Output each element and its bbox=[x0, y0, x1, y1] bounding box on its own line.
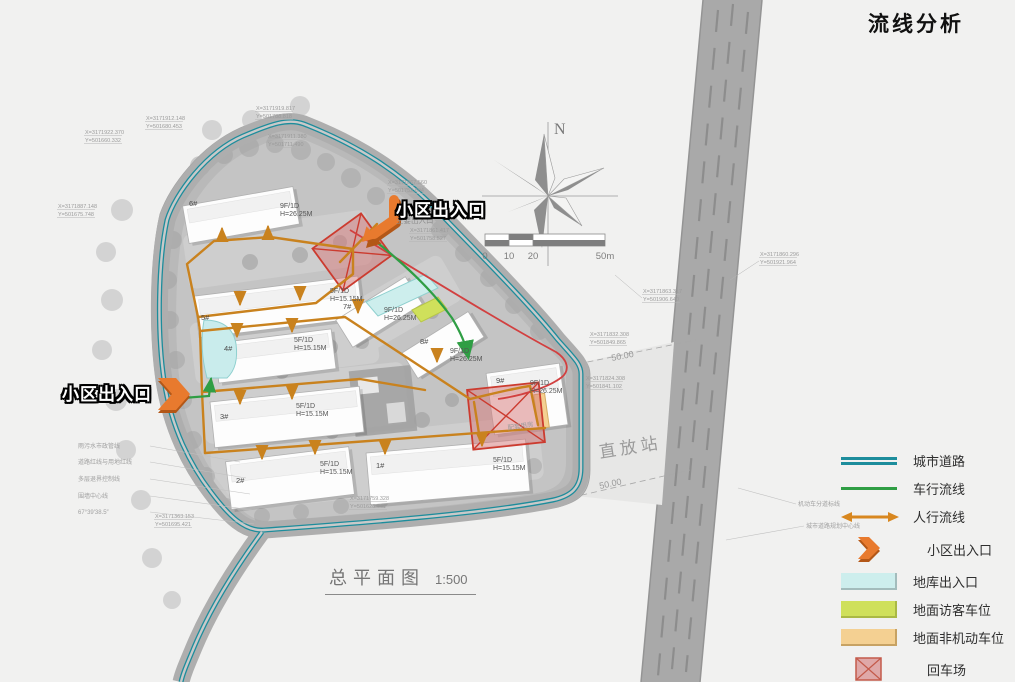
svg-text:X=3171887.148: X=3171887.148 bbox=[58, 204, 97, 210]
garage-entrance-swatch bbox=[841, 573, 903, 590]
turnaround-box-icon bbox=[855, 657, 882, 681]
svg-text:围墙中心线: 围墙中心线 bbox=[78, 492, 108, 500]
svg-text:Y=501921.964: Y=501921.964 bbox=[760, 260, 796, 266]
building-spec: H=26.25M bbox=[530, 388, 563, 395]
legend-item-city-road: 城市道路 bbox=[841, 452, 1013, 469]
building-spec: H=15.15M bbox=[330, 296, 363, 303]
compass-north-label: N bbox=[554, 121, 566, 138]
city-road-swatch bbox=[841, 455, 903, 467]
svg-text:Y=501675.748: Y=501675.748 bbox=[58, 212, 94, 218]
city-road-band bbox=[641, 0, 762, 682]
building-spec: 5F/1D bbox=[294, 337, 313, 344]
building-spec: H=15.15M bbox=[320, 469, 353, 476]
svg-text:X=3171861.417: X=3171861.417 bbox=[410, 228, 449, 234]
legend-item-community-entrance: 小区出入口 bbox=[841, 536, 1013, 562]
building-spec: 9F/1D bbox=[280, 203, 299, 210]
building-spec: 9F/1D bbox=[384, 307, 403, 314]
page-title: 流线分析 bbox=[868, 8, 964, 38]
svg-text:Y=501841.102: Y=501841.102 bbox=[586, 384, 622, 390]
legend-item-non-motorized-parking: 地面非机动车位 bbox=[841, 629, 1013, 646]
svg-text:Y=501695.421: Y=501695.421 bbox=[155, 522, 191, 528]
scale-tick-50m: 50m bbox=[596, 251, 615, 262]
svg-text:雨污水市政管线: 雨污水市政管线 bbox=[78, 442, 120, 450]
svg-text:Y=501680.453: Y=501680.453 bbox=[146, 124, 182, 130]
building-id: 7# bbox=[343, 302, 352, 311]
svg-text:X=3171824.308: X=3171824.308 bbox=[586, 376, 625, 382]
svg-text:道路红线与用地红线: 道路红线与用地红线 bbox=[78, 458, 132, 466]
svg-text:Y=501758.527: Y=501758.527 bbox=[410, 236, 446, 242]
building-id: 6# bbox=[189, 199, 198, 208]
svg-text:X=3171922.370: X=3171922.370 bbox=[85, 130, 124, 136]
svg-text:Y=501752.894: Y=501752.894 bbox=[388, 188, 424, 194]
visitor-parking-swatch bbox=[841, 601, 903, 618]
community-entrance-callout-left: 小区出入口 bbox=[62, 380, 152, 405]
legend-item-turnaround: 回车场 bbox=[841, 657, 1013, 681]
scale-tick-0: 0 bbox=[482, 251, 487, 262]
svg-text:X=3171832.308: X=3171832.308 bbox=[590, 332, 629, 338]
svg-text:机动车分道标线: 机动车分道标线 bbox=[798, 500, 840, 508]
coord-label: X=3171832.308Y=501849.865 bbox=[589, 332, 629, 346]
legend: 城市道路 车行流线 人行流线 小区出入口 地库出入口 地面访客车位 地面非机动车… bbox=[841, 452, 1013, 681]
building-id: 4# bbox=[224, 344, 233, 353]
vehicle-flow-swatch bbox=[841, 487, 903, 490]
legend-item-vehicle-flow: 车行流线 bbox=[841, 480, 1013, 497]
building-id: 1# bbox=[376, 461, 385, 470]
plan-caption-scale: 1:500 bbox=[435, 572, 468, 587]
building-id: 8# bbox=[420, 337, 429, 346]
scale-tick-10: 10 bbox=[504, 251, 515, 262]
svg-text:X=3171867.560: X=3171867.560 bbox=[388, 180, 427, 186]
scale-tick-20: 20 bbox=[528, 251, 539, 262]
svg-text:Y=501628.741: Y=501628.741 bbox=[350, 504, 386, 510]
building-spec: H=15.15M bbox=[294, 345, 327, 352]
legend-label: 人行流线 bbox=[913, 507, 965, 526]
building-spec: 9F/1D bbox=[530, 380, 549, 387]
coord-label: X=3171922.370Y=501660.332 bbox=[84, 130, 124, 144]
plan-caption-name: 总平面图 bbox=[329, 564, 425, 590]
flow-analysis-sheet: 50.00 50.00 直放站 bbox=[0, 0, 1015, 682]
building-spec: H=15.15M bbox=[296, 411, 329, 418]
road-annotations: 机动车分道标线 城市道路规划中心线 bbox=[726, 488, 860, 540]
legend-item-garage-entrance: 地库出入口 bbox=[841, 573, 1013, 590]
legend-item-visitor-parking: 地面访客车位 bbox=[841, 601, 1013, 618]
legend-label: 地面非机动车位 bbox=[913, 628, 1004, 647]
svg-text:X=3171912.148: X=3171912.148 bbox=[146, 116, 185, 122]
building-spec: H=26.25M bbox=[280, 211, 313, 218]
legend-label: 小区出入口 bbox=[927, 540, 992, 559]
building-id: 9# bbox=[496, 376, 505, 385]
building-spec: H=15.15M bbox=[493, 465, 526, 472]
svg-text:X=3171860.296: X=3171860.296 bbox=[760, 252, 799, 258]
turnaround-swatch bbox=[841, 657, 917, 681]
svg-text:Y=501788.818: Y=501788.818 bbox=[256, 114, 292, 120]
legend-label: 车行流线 bbox=[913, 479, 965, 498]
svg-text:多层退界控制线: 多层退界控制线 bbox=[78, 475, 120, 483]
pedestrian-flow-swatch bbox=[841, 510, 903, 524]
coord-label: X=3171912.148Y=501680.453 bbox=[145, 116, 185, 130]
svg-text:Y=501660.332: Y=501660.332 bbox=[85, 138, 121, 144]
coord-label: X=3171863.317Y=501906.640 bbox=[615, 275, 682, 303]
legend-label: 地面访客车位 bbox=[913, 600, 991, 619]
legend-label: 地库出入口 bbox=[913, 572, 978, 591]
svg-text:67°39′38.5″: 67°39′38.5″ bbox=[78, 510, 110, 516]
entrance-chevron-icon bbox=[855, 534, 883, 564]
legend-label: 回车场 bbox=[927, 660, 966, 679]
coord-label: X=3171887.148Y=501675.748 bbox=[57, 204, 97, 218]
building-spec: H=26.25M bbox=[450, 356, 483, 363]
svg-text:Y=501849.865: Y=501849.865 bbox=[590, 340, 626, 346]
coord-label: X=3171919.817Y=501788.818 bbox=[255, 106, 295, 120]
svg-text:Y=501906.640: Y=501906.640 bbox=[643, 297, 679, 303]
building-spec: 9F/1D bbox=[450, 348, 469, 355]
legend-item-pedestrian-flow: 人行流线 bbox=[841, 508, 1013, 525]
community-entrance-callout-top: 小区出入口 bbox=[396, 196, 486, 221]
building-spec: 5F/1D bbox=[330, 288, 349, 295]
building-id: 3# bbox=[220, 412, 229, 421]
building-spec: 5F/1D bbox=[493, 457, 512, 464]
svg-text:X=3171863.317: X=3171863.317 bbox=[643, 289, 682, 295]
svg-text:Y=501711.490: Y=501711.490 bbox=[268, 142, 304, 148]
double-arrow-icon bbox=[841, 510, 899, 524]
building-id: 5# bbox=[201, 313, 210, 322]
svg-text:X=3171911.380: X=3171911.380 bbox=[268, 134, 307, 140]
coord-label: X=3171860.296Y=501921.964 bbox=[730, 252, 799, 280]
plan-caption: 总平面图 1:500 bbox=[325, 564, 476, 595]
community-entrance-swatch bbox=[841, 534, 917, 564]
building-spec: 5F/1D bbox=[320, 461, 339, 468]
legend-label: 城市道路 bbox=[913, 451, 965, 470]
building-spec: 5F/1D bbox=[296, 403, 315, 410]
svg-text:X=3171919.817: X=3171919.817 bbox=[256, 106, 295, 112]
non-motorized-parking-swatch bbox=[841, 629, 903, 646]
building-spec: H=26.25M bbox=[384, 315, 417, 322]
svg-text:X=3171759.328: X=3171759.328 bbox=[350, 496, 389, 502]
